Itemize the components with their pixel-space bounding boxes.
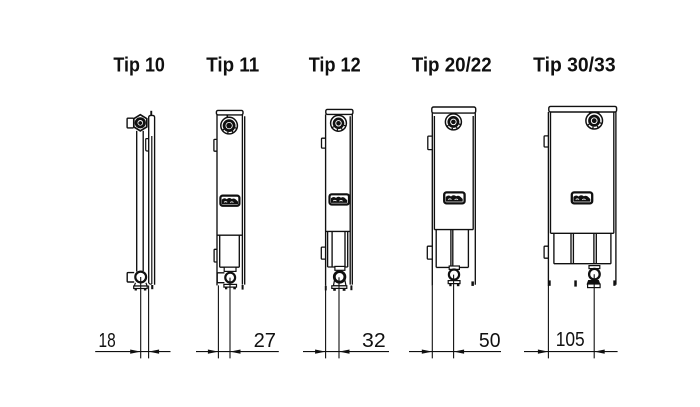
svg-text:105: 105	[556, 329, 585, 351]
svg-text:Tip 30/33: Tip 30/33	[533, 54, 616, 77]
svg-text:27: 27	[254, 330, 276, 352]
svg-text:Tip 10: Tip 10	[113, 54, 164, 77]
svg-text:50: 50	[479, 330, 501, 352]
svg-text:Tip 12: Tip 12	[309, 54, 361, 77]
svg-text:18: 18	[99, 330, 116, 352]
svg-text:32: 32	[362, 330, 386, 352]
svg-text:Tip 11: Tip 11	[206, 54, 259, 77]
svg-text:Tip 20/22: Tip 20/22	[412, 54, 492, 77]
